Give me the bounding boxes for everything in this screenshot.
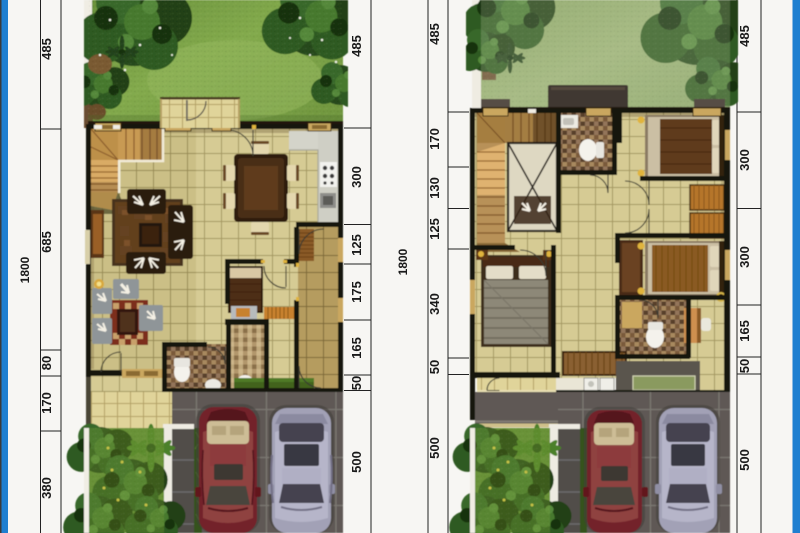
svg-text:170: 170 bbox=[39, 392, 54, 414]
svg-text:50: 50 bbox=[349, 376, 364, 390]
svg-text:125: 125 bbox=[427, 218, 442, 240]
svg-text:165: 165 bbox=[349, 337, 364, 359]
svg-text:500: 500 bbox=[427, 437, 442, 459]
svg-text:485: 485 bbox=[349, 35, 364, 57]
svg-text:685: 685 bbox=[39, 231, 54, 253]
svg-text:175: 175 bbox=[349, 281, 364, 303]
svg-text:300: 300 bbox=[737, 246, 752, 268]
svg-text:80: 80 bbox=[39, 356, 54, 370]
svg-text:165: 165 bbox=[737, 320, 752, 342]
svg-text:50: 50 bbox=[737, 359, 752, 373]
svg-text:50: 50 bbox=[427, 360, 442, 374]
svg-text:170: 170 bbox=[427, 128, 442, 150]
svg-text:1800: 1800 bbox=[396, 248, 410, 275]
svg-text:340: 340 bbox=[427, 293, 442, 315]
svg-text:500: 500 bbox=[737, 449, 752, 471]
svg-text:300: 300 bbox=[349, 166, 364, 188]
svg-text:1800: 1800 bbox=[18, 256, 32, 283]
svg-text:485: 485 bbox=[737, 25, 752, 47]
svg-text:500: 500 bbox=[349, 451, 364, 473]
svg-text:485: 485 bbox=[427, 23, 442, 45]
svg-text:485: 485 bbox=[39, 38, 54, 60]
svg-text:380: 380 bbox=[39, 477, 54, 499]
svg-text:125: 125 bbox=[349, 234, 364, 256]
svg-text:300: 300 bbox=[737, 149, 752, 171]
svg-text:130: 130 bbox=[427, 177, 442, 199]
